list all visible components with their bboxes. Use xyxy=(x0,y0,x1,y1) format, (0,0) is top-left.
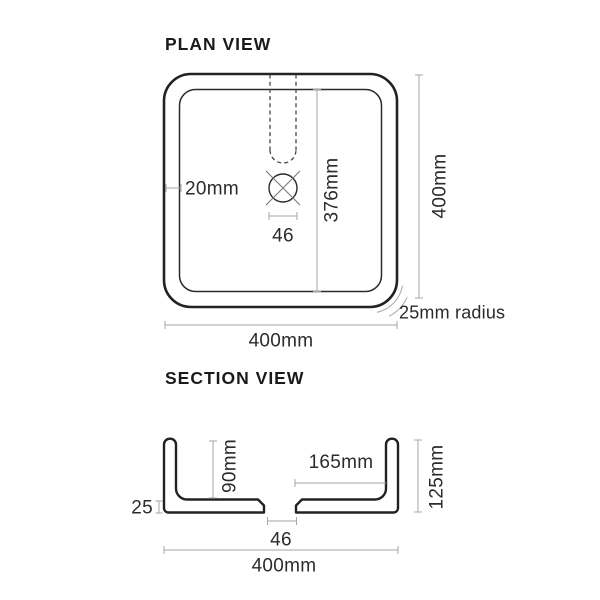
dim-label: 400mm xyxy=(430,154,451,219)
dim-line xyxy=(415,75,423,298)
section-profile-right xyxy=(296,439,398,513)
section-view: SECTION VIEW 90mm 165mm 125mm xyxy=(131,368,447,577)
dim-label: 46 xyxy=(270,530,292,551)
section-dim-drain-width: 46 xyxy=(268,517,297,551)
section-dim-drain-to-wall: 165mm xyxy=(295,452,386,487)
dim-label: 400mm xyxy=(252,556,317,577)
plan-dim-overall-height: 400mm xyxy=(415,75,451,298)
section-profile-left xyxy=(164,439,264,513)
dim-line xyxy=(268,517,297,525)
section-view-title: SECTION VIEW xyxy=(165,368,304,388)
dim-label: 165mm xyxy=(309,452,374,473)
dim-label: 25mm radius xyxy=(399,302,505,322)
plan-dim-corner-radius: 25mm radius xyxy=(377,286,505,323)
dim-label: 46 xyxy=(272,226,294,247)
section-dim-overall-height: 125mm xyxy=(414,440,448,512)
dim-line xyxy=(414,440,422,512)
technical-drawing-page: PLAN VIEW 20mm 46 376mm xyxy=(0,0,600,600)
plan-dim-overall-width: 400mm xyxy=(165,321,397,352)
dim-label: 90mm xyxy=(220,439,241,493)
dim-label: 376mm xyxy=(322,158,343,223)
dim-label: 20mm xyxy=(185,179,239,200)
dim-label: 400mm xyxy=(249,331,314,352)
dim-line xyxy=(295,479,386,487)
section-dim-base-thickness: 25 xyxy=(131,498,162,519)
dim-line xyxy=(156,501,163,513)
drawing-canvas: PLAN VIEW 20mm 46 376mm xyxy=(0,0,600,600)
dim-line xyxy=(209,441,217,498)
section-dim-inner-depth: 90mm xyxy=(209,439,241,498)
dim-label: 25 xyxy=(131,498,153,519)
dim-label: 125mm xyxy=(427,445,448,510)
dim-line xyxy=(165,321,397,329)
plan-view: PLAN VIEW 20mm 46 376mm xyxy=(164,34,505,352)
plan-view-title: PLAN VIEW xyxy=(165,34,271,54)
